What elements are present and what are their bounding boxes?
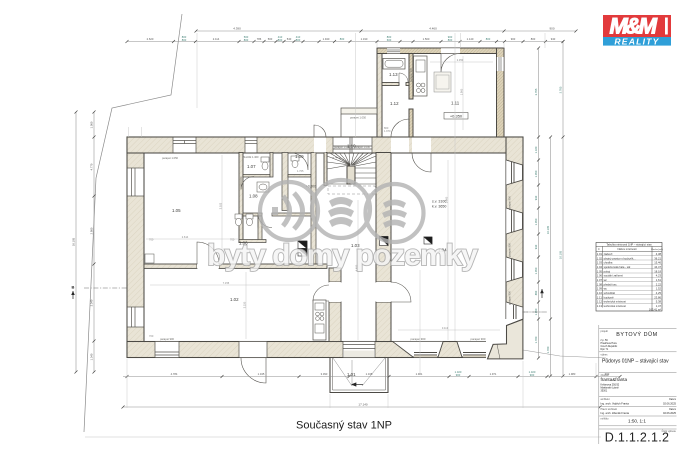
- svg-text:163,41 m²: 163,41 m²: [649, 308, 661, 312]
- svg-text:projekt: projekt: [601, 330, 609, 333]
- svg-text:1.050: 1.050: [534, 170, 538, 177]
- svg-text:technická místnost: technická místnost: [604, 304, 627, 308]
- svg-text:2.614: 2.614: [182, 235, 189, 239]
- svg-text:16.105: 16.105: [71, 237, 75, 246]
- svg-text:1.780: 1.780: [546, 346, 550, 353]
- svg-text:2.114: 2.114: [213, 37, 220, 41]
- svg-text:Světlík 1.400: Světlík 1.400: [244, 155, 260, 159]
- svg-text:+0,350: +0,350: [450, 114, 463, 119]
- svg-text:4.460: 4.460: [429, 27, 437, 31]
- svg-text:parapet 1.050: parapet 1.050: [162, 156, 179, 160]
- svg-text:1,47: 1,47: [656, 304, 662, 308]
- svg-text:1.12: 1.12: [390, 101, 399, 106]
- svg-text:Dpn 71: Dpn 71: [601, 348, 609, 351]
- svg-text:02.06.2025: 02.06.2025: [663, 401, 677, 405]
- svg-text:1.340: 1.340: [89, 353, 93, 360]
- svg-text:900: 900: [549, 27, 554, 31]
- svg-text:parapet 1.050: parapet 1.050: [350, 116, 367, 120]
- svg-text:obytný prostor s kuchyňk...: obytný prostor s kuchyňk...: [604, 256, 636, 260]
- svg-text:3.113: 3.113: [442, 326, 449, 330]
- svg-text:10.105: 10.105: [559, 250, 563, 259]
- svg-text:02.06.2025: 02.06.2025: [663, 411, 677, 415]
- svg-text:36,21: 36,21: [654, 256, 661, 260]
- svg-text:786: 786: [257, 37, 262, 41]
- svg-text:540: 540: [287, 37, 292, 41]
- svg-text:1.500: 1.500: [423, 37, 430, 41]
- svg-text:940: 940: [551, 37, 556, 41]
- svg-text:s.v. 3100: s.v. 3100: [432, 200, 446, 204]
- svg-text:architekt: architekt: [601, 398, 610, 401]
- svg-text:1.08: 1.08: [597, 282, 603, 286]
- svg-text:600: 600: [387, 38, 392, 42]
- svg-text:1.05: 1.05: [597, 269, 603, 273]
- svg-text:1.970: 1.970: [384, 129, 391, 133]
- svg-text:1.060: 1.060: [89, 121, 93, 128]
- svg-text:1.13: 1.13: [389, 72, 398, 77]
- svg-text:1.13: 1.13: [597, 304, 603, 308]
- svg-text:3.765: 3.765: [534, 88, 538, 95]
- svg-text:1.09: 1.09: [597, 287, 603, 291]
- svg-text:zádveří: zádveří: [604, 252, 613, 256]
- svg-text:860: 860: [534, 290, 538, 295]
- svg-text:Datum: Datum: [669, 408, 676, 411]
- svg-text:800: 800: [182, 38, 187, 42]
- svg-text:900: 900: [530, 373, 535, 377]
- svg-text:1.345: 1.345: [258, 372, 265, 376]
- svg-text:1.940: 1.940: [323, 37, 330, 41]
- svg-text:1.02: 1.02: [230, 297, 239, 302]
- svg-text:3.765: 3.765: [559, 86, 563, 93]
- svg-text:1.04: 1.04: [597, 265, 603, 269]
- svg-text:44,47: 44,47: [654, 265, 661, 269]
- svg-text:800: 800: [531, 37, 536, 41]
- svg-text:parapet 900: parapet 900: [160, 337, 174, 341]
- svg-text:předsíň wc: předsíň wc: [604, 282, 618, 286]
- svg-text:B: B: [72, 285, 75, 290]
- svg-text:1.10: 1.10: [347, 144, 356, 149]
- svg-text:technická místnost: technická místnost: [604, 300, 627, 304]
- svg-text:23,86: 23,86: [654, 295, 661, 299]
- svg-text:10.105: 10.105: [546, 225, 550, 234]
- svg-text:1.900: 1.900: [460, 88, 464, 95]
- svg-text:byty domy pozemky: byty domy pozemky: [207, 239, 478, 272]
- svg-text:800: 800: [244, 38, 249, 42]
- svg-text:4,25: 4,25: [656, 291, 662, 295]
- svg-text:800: 800: [448, 38, 453, 42]
- svg-text:Tabulka místností 1NP – stávaj: Tabulka místností 1NP – stávající stav: [606, 243, 652, 247]
- svg-text:č.: č.: [598, 247, 600, 251]
- svg-text:Ing. arch. Zdeněk Franta: Ing. arch. Zdeněk Franta: [601, 411, 630, 415]
- svg-text:1.06: 1.06: [597, 274, 603, 278]
- svg-text:15,46: 15,46: [654, 261, 661, 265]
- svg-text:chodba: chodba: [604, 261, 613, 265]
- svg-text:parapet 900: parapet 900: [471, 337, 486, 341]
- svg-text:2.350: 2.350: [457, 58, 464, 62]
- svg-text:3.340: 3.340: [89, 299, 93, 306]
- svg-text:1.12: 1.12: [597, 300, 603, 304]
- svg-text:930: 930: [534, 195, 538, 200]
- svg-text:2.620: 2.620: [147, 37, 154, 41]
- svg-text:800: 800: [486, 37, 491, 41]
- svg-text:1.050: 1.050: [534, 218, 538, 225]
- svg-text:800: 800: [278, 38, 283, 42]
- svg-text:parapet 1.000: parapet 1.000: [354, 145, 371, 149]
- svg-text:2.980: 2.980: [89, 227, 93, 234]
- svg-text:společenská hala - sál: společenská hala - sál: [604, 265, 631, 269]
- svg-text:1.190: 1.190: [361, 37, 368, 41]
- svg-text:500: 500: [268, 37, 273, 41]
- svg-text:schodiště: schodiště: [604, 291, 616, 295]
- svg-text:M&M: M&M: [609, 14, 657, 39]
- svg-text:900: 900: [511, 37, 516, 41]
- svg-text:parapet 900: parapet 900: [409, 68, 413, 82]
- svg-text:1.140: 1.140: [467, 37, 474, 41]
- svg-text:1.01: 1.01: [597, 252, 603, 256]
- svg-text:4.390: 4.390: [233, 27, 241, 31]
- svg-text:sociální zařízení: sociální zařízení: [604, 274, 624, 278]
- svg-text:1,52: 1,52: [656, 287, 662, 291]
- svg-text:1.03: 1.03: [597, 261, 603, 265]
- svg-text:35301: 35301: [601, 389, 608, 392]
- svg-text:3.393: 3.393: [321, 372, 328, 376]
- svg-text:4,38: 4,38: [656, 252, 662, 256]
- svg-text:1.780: 1.780: [534, 336, 538, 343]
- svg-text:1.345: 1.345: [366, 372, 373, 376]
- svg-text:1.05: 1.05: [172, 208, 181, 213]
- svg-text:REALITY: REALITY: [614, 36, 659, 46]
- svg-text:parapet 900: parapet 900: [508, 291, 512, 305]
- svg-text:Ing. arch. Vojtěch Franta: Ing. arch. Vojtěch Franta: [601, 401, 630, 405]
- svg-text:1.02: 1.02: [597, 256, 603, 260]
- svg-text:4.770: 4.770: [89, 163, 93, 170]
- svg-text:kuchyně: kuchyně: [604, 295, 615, 299]
- svg-text:800: 800: [340, 37, 345, 41]
- svg-text:700: 700: [149, 334, 154, 338]
- svg-text:Hlavní architekt: Hlavní architekt: [601, 408, 618, 411]
- svg-text:4.784: 4.784: [171, 372, 178, 376]
- svg-text:parapet 900: parapet 900: [411, 337, 426, 341]
- svg-text:3.022: 3.022: [219, 202, 223, 209]
- svg-text:výkres: výkres: [601, 354, 609, 357]
- svg-text:Datum: Datum: [669, 398, 676, 401]
- svg-text:1.981: 1.981: [416, 372, 423, 376]
- svg-text:franta&franta: franta&franta: [601, 377, 628, 382]
- svg-text:1.705: 1.705: [297, 169, 304, 173]
- svg-text:4,23: 4,23: [656, 274, 662, 278]
- svg-text:930: 930: [534, 244, 538, 249]
- svg-text:pokoj: pokoj: [604, 269, 611, 273]
- svg-text:1.180: 1.180: [534, 146, 538, 153]
- svg-text:BYTOVÝ DŮM: BYTOVÝ DŮM: [616, 331, 658, 338]
- svg-text:parapet 900: parapet 900: [508, 243, 512, 257]
- svg-text:Plocha (m2): Plocha (m2): [651, 249, 663, 251]
- svg-text:Současný stav 1NP: Současný stav 1NP: [296, 420, 392, 432]
- svg-text:k.v. 3650: k.v. 3650: [432, 205, 446, 209]
- svg-text:3.150: 3.150: [243, 301, 247, 308]
- svg-text:1.983: 1.983: [569, 372, 576, 376]
- svg-text:700: 700: [149, 238, 154, 242]
- svg-text:1.11: 1.11: [597, 295, 603, 299]
- svg-text:1.050: 1.050: [534, 267, 538, 274]
- svg-text:900: 900: [456, 373, 461, 377]
- svg-text:1.10: 1.10: [597, 291, 603, 295]
- svg-text:800: 800: [296, 38, 301, 42]
- svg-text:D.1.1.2.1.2: D.1.1.2.1.2: [605, 431, 669, 445]
- svg-text:1.09: 1.09: [295, 154, 304, 159]
- svg-text:1,61: 1,61: [656, 278, 662, 282]
- svg-text:17.140: 17.140: [358, 403, 368, 407]
- svg-text:1.08: 1.08: [249, 194, 258, 199]
- svg-text:Půdorys 01NP – stávající stav: Půdorys 01NP – stávající stav: [602, 358, 669, 365]
- svg-text:1.11: 1.11: [451, 101, 460, 106]
- svg-text:1:50, 1:1: 1:50, 1:1: [628, 419, 646, 424]
- svg-text:Název místnosti: Název místnosti: [617, 247, 637, 251]
- svg-text:1.07: 1.07: [247, 164, 256, 169]
- svg-text:18,18: 18,18: [654, 269, 661, 273]
- svg-text:parapet 900: parapet 900: [508, 196, 512, 210]
- svg-text:1.900: 1.900: [445, 196, 449, 203]
- svg-text:2,22: 2,22: [656, 282, 662, 286]
- svg-text:měřítko: měřítko: [601, 418, 610, 421]
- svg-text:5,38: 5,38: [656, 300, 662, 304]
- svg-text:7.155: 7.155: [223, 281, 230, 285]
- svg-text:1.971: 1.971: [490, 372, 497, 376]
- svg-text:1.07: 1.07: [597, 278, 603, 282]
